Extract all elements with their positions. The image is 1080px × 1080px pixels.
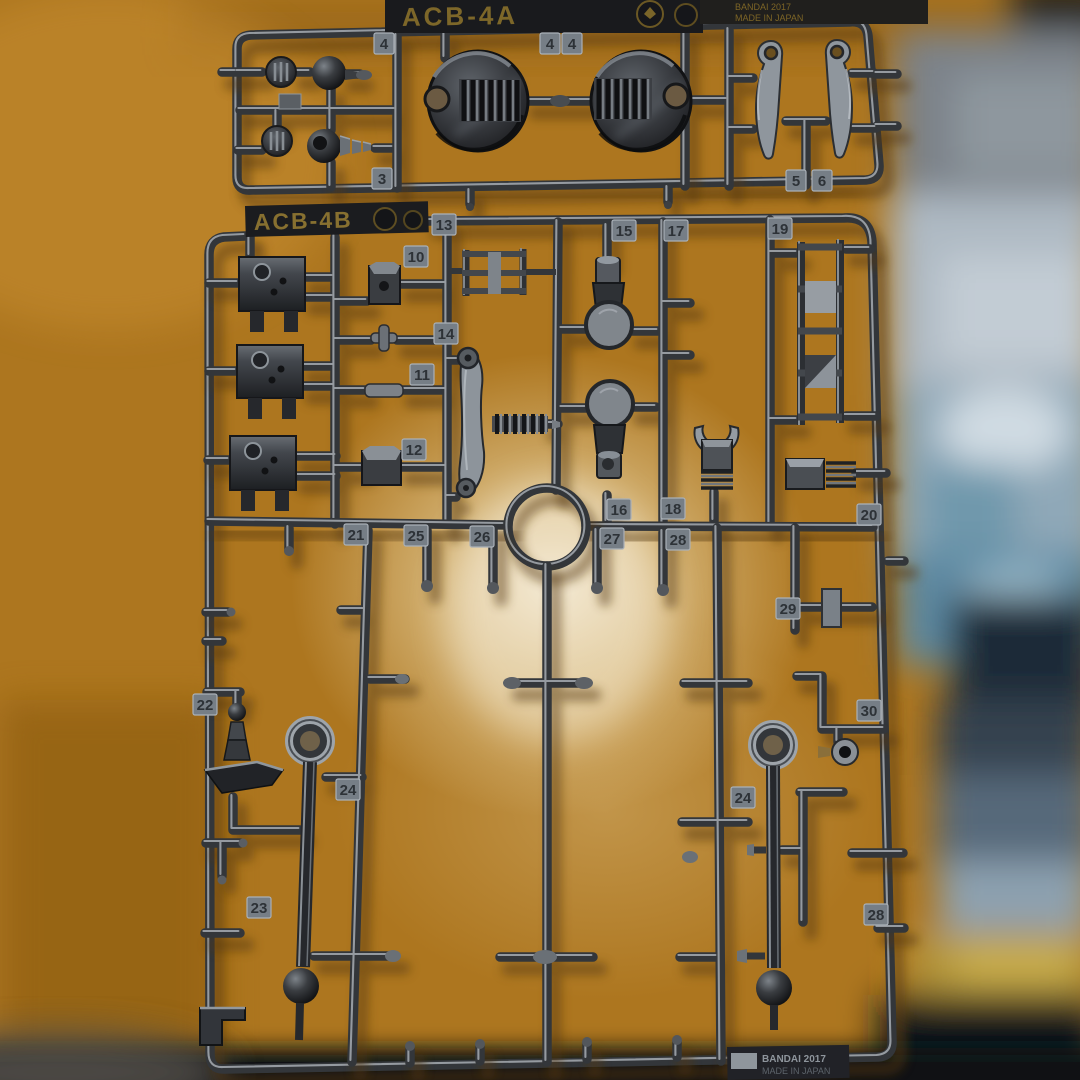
svg-text:21: 21 [348,527,365,544]
svg-text:15: 15 [616,223,633,240]
svg-text:18: 18 [665,501,682,518]
svg-text:22: 22 [197,697,214,714]
svg-text:27: 27 [604,531,621,548]
svg-text:ACB-4B: ACB-4B [253,206,353,235]
svg-text:4: 4 [546,36,555,53]
svg-text:BANDAI 2017: BANDAI 2017 [735,2,791,12]
svg-text:30: 30 [861,703,878,720]
svg-text:MADE IN JAPAN: MADE IN JAPAN [735,13,803,23]
svg-text:4: 4 [568,36,577,53]
svg-text:28: 28 [868,907,885,924]
svg-text:ACB-4A: ACB-4A [402,0,519,32]
svg-text:4: 4 [380,36,389,53]
svg-text:20: 20 [861,507,878,524]
svg-text:BANDAI 2017: BANDAI 2017 [762,1054,826,1065]
svg-text:28: 28 [670,532,687,549]
svg-text:6: 6 [818,173,826,190]
svg-text:29: 29 [780,601,797,618]
svg-text:26: 26 [474,529,491,546]
svg-text:14: 14 [438,326,455,343]
svg-text:3: 3 [378,171,386,188]
svg-text:19: 19 [772,221,789,238]
svg-text:17: 17 [668,223,685,240]
svg-text:16: 16 [611,502,628,519]
svg-text:13: 13 [436,217,453,234]
svg-text:12: 12 [406,442,423,459]
svg-text:24: 24 [340,782,357,799]
svg-text:24: 24 [735,790,752,807]
svg-text:23: 23 [251,900,268,917]
svg-text:MADE IN JAPAN: MADE IN JAPAN [762,1066,830,1076]
svg-text:11: 11 [414,367,430,384]
svg-text:10: 10 [408,249,425,266]
svg-text:5: 5 [792,173,800,190]
svg-text:25: 25 [408,528,425,545]
